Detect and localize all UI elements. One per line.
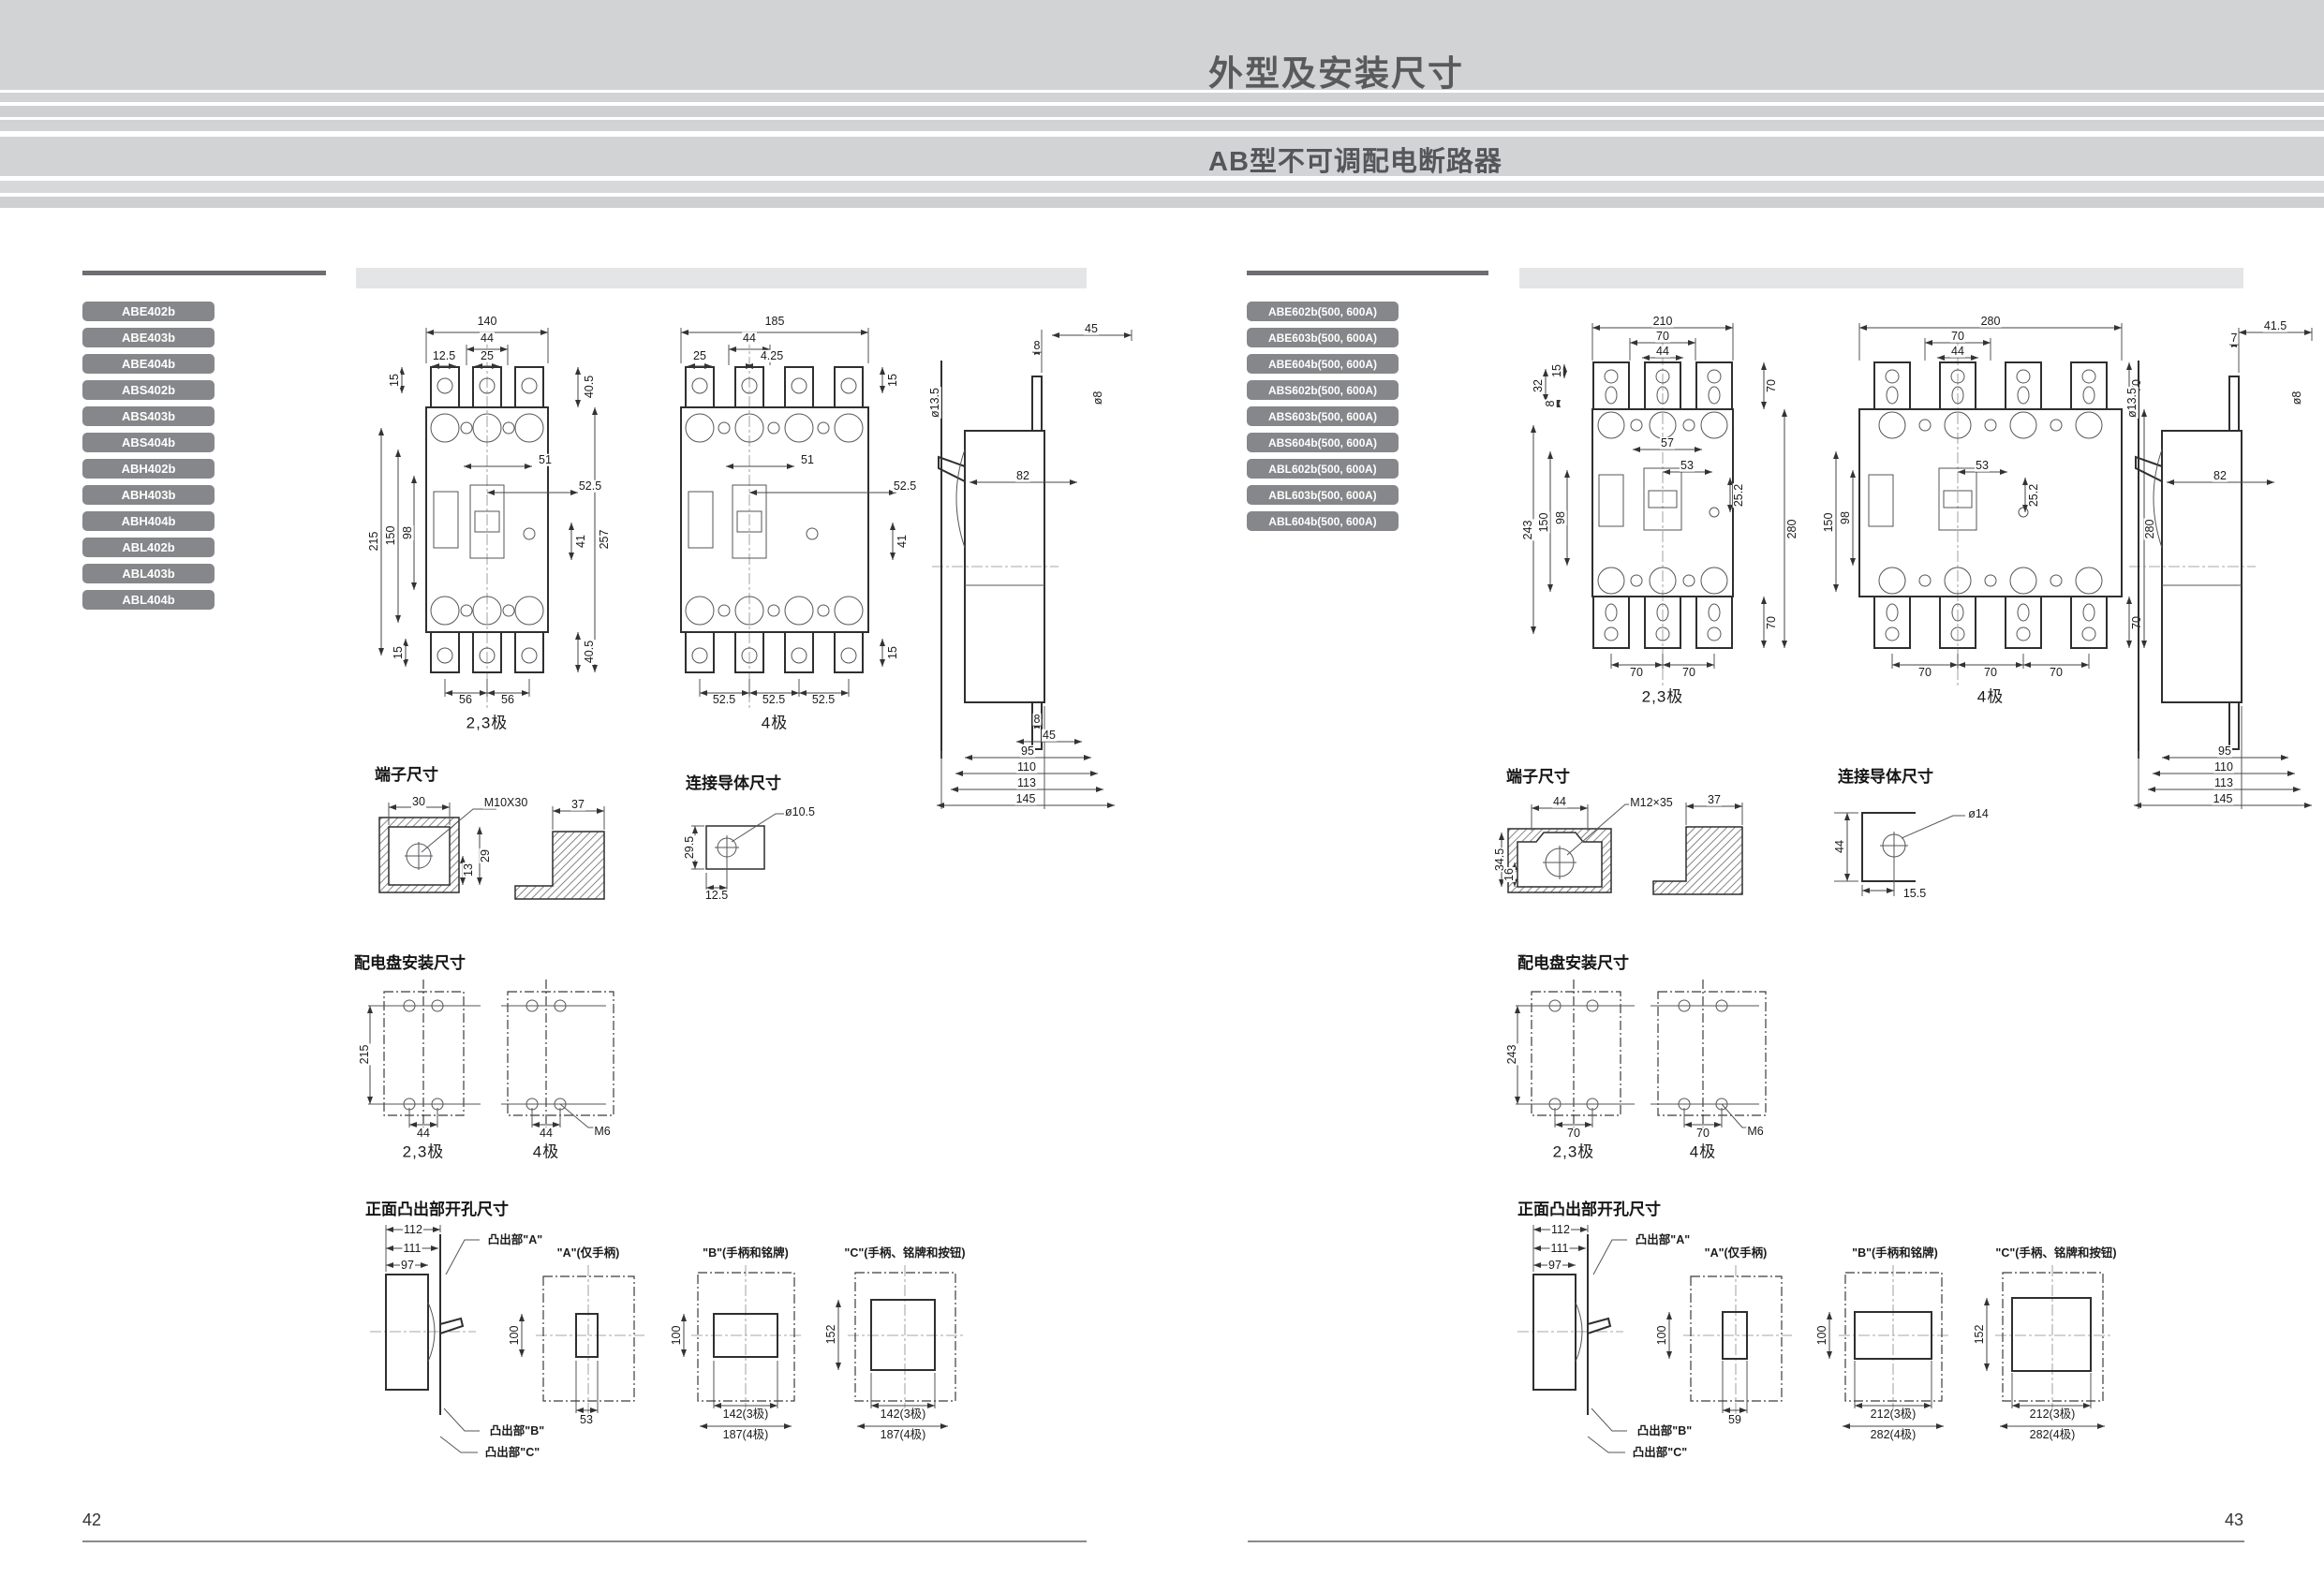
dim-label: 25	[692, 350, 707, 362]
dim-label: 95	[2217, 745, 2232, 758]
panel-mounting-drawing	[1508, 980, 1836, 1167]
dim-label: 97	[1547, 1260, 1562, 1272]
dim-label: 113	[1016, 777, 1037, 789]
model-badge: ABE602b(500, 600A)	[1247, 302, 1399, 321]
dim-label: 凸出部"B"	[489, 1425, 545, 1437]
dim-label: 15	[1551, 363, 1563, 378]
model-badge: ABL604b(500, 600A)	[1247, 511, 1399, 531]
dim-label: 56	[500, 694, 515, 706]
page-number-left: 42	[82, 1511, 101, 1530]
dim-label: 152	[1974, 1324, 1986, 1346]
dim-label: 7	[2230, 332, 2239, 345]
dim-label: 243	[1506, 1044, 1518, 1066]
page-header-band	[0, 0, 2324, 208]
right-cutout-figure: 11211197凸出部"A"凸出部"B"凸出部"C""A"(仅手柄)10059"…	[1513, 1223, 2225, 1466]
dim-label: 82	[1015, 470, 1030, 482]
right-section-band	[1519, 268, 2243, 288]
dim-label: ø13.5	[2126, 387, 2139, 419]
conductor-drawing	[1827, 789, 2023, 921]
dim-label: 29	[480, 848, 492, 863]
dim-label: 100	[509, 1325, 521, 1347]
figure-caption: 4极	[1689, 1144, 1717, 1160]
dim-label: M10X30	[483, 797, 529, 809]
left-terminal-figure: 30M10X30132937	[365, 794, 618, 916]
model-badge: ABH402b	[82, 459, 215, 479]
model-badge: ABS402b	[82, 380, 215, 400]
left-front-view-2-3-pole: 1404412.5251540.55152.521515098412571540…	[361, 309, 614, 735]
dim-label: 8	[1033, 714, 1042, 726]
left-section-band	[356, 268, 1087, 288]
dim-label: 70	[1629, 667, 1644, 679]
right-section-rule	[1247, 271, 1488, 275]
dim-label: 37	[1707, 794, 1722, 806]
dim-label: 15.5	[1902, 888, 1927, 900]
terminal-drawing	[365, 794, 618, 916]
section-title-terminal-left: 端子尺寸	[375, 761, 438, 785]
dim-label: 212(3极)	[2029, 1408, 2077, 1421]
dim-label: 112	[1550, 1224, 1571, 1236]
dim-label: ø10.5	[784, 806, 816, 818]
dim-label: 215	[368, 531, 380, 553]
model-badge: ABS602b(500, 600A)	[1247, 380, 1399, 400]
dim-label: 57	[1660, 437, 1675, 450]
dim-label: M6	[593, 1126, 611, 1138]
figure-caption: 4极	[532, 1144, 560, 1160]
model-badge: ABS403b	[82, 406, 215, 426]
left-conductor-figure: 29.5ø10.512.5	[680, 798, 839, 910]
dim-label: 44	[539, 1127, 554, 1140]
section-title-conductor-left: 连接导体尺寸	[686, 770, 781, 793]
right-terminal-figure: 44M12×3534.51637	[1494, 789, 1822, 921]
dim-label: 150	[1538, 512, 1550, 534]
dim-label: 150	[1823, 512, 1835, 534]
page-subtitle: AB型不可调配电断路器	[1208, 140, 1502, 179]
dim-label: 40.5	[584, 375, 596, 399]
dim-label: 45	[1084, 323, 1099, 335]
model-badge: ABE403b	[82, 328, 215, 347]
dim-label: 37	[570, 799, 585, 811]
dim-label: 59	[1727, 1414, 1742, 1426]
model-badge: ABS603b(500, 600A)	[1247, 406, 1399, 426]
model-badge: ABE603b(500, 600A)	[1247, 328, 1399, 347]
dim-label: 56	[458, 694, 473, 706]
dim-label: 257	[599, 529, 611, 551]
dim-label: 45	[1042, 730, 1057, 742]
dim-label: 12.5	[704, 890, 729, 902]
dim-label: "B"(手柄和铭牌)	[702, 1247, 790, 1260]
page-number-right: 43	[2206, 1511, 2243, 1530]
dim-label: 15	[887, 645, 899, 660]
dim-label: 70	[2049, 667, 2064, 679]
right-conductor-figure: 44ø1415.5	[1827, 789, 2023, 921]
dim-label: 145	[1015, 793, 1037, 805]
dim-label: 152	[825, 1324, 837, 1346]
dim-label: 51	[538, 454, 553, 466]
figure-caption: 2,3极	[402, 1144, 446, 1160]
dim-label: "C"(手柄、铭牌和按钮)	[1994, 1247, 2117, 1260]
dim-label: 110	[1016, 761, 1037, 774]
model-badge: ABL404b	[82, 590, 215, 610]
model-badge: ABL403b	[82, 564, 215, 583]
figure-caption: 2,3极	[1641, 689, 1685, 705]
dim-label: 44	[742, 332, 757, 345]
dim-label: 70	[1695, 1127, 1710, 1140]
breaker-side-drawing	[2124, 309, 2321, 819]
section-title-terminal-right: 端子尺寸	[1506, 763, 1570, 787]
dim-label: 41	[896, 534, 909, 549]
dim-label: "B"(手柄和铭牌)	[1851, 1247, 1939, 1260]
cutout-drawing	[365, 1223, 1049, 1466]
right-footer-rule	[1248, 1540, 2244, 1542]
dim-label: 15	[389, 373, 401, 388]
dim-label: 8	[1545, 400, 1557, 408]
dim-label: 210	[1652, 316, 1674, 328]
right-front-view-4-pole: 2807044150985325.270280707070704极	[1813, 311, 2154, 709]
dim-label: M12×35	[1629, 797, 1674, 809]
dim-label: 40.5	[584, 640, 596, 664]
dim-label: 98	[402, 525, 414, 540]
dim-label: 100	[671, 1325, 683, 1347]
dim-label: 4.25	[760, 350, 784, 362]
dim-label: 53	[1975, 460, 1990, 472]
figure-caption: 4极	[1976, 689, 2005, 705]
breaker-front-drawing	[1813, 311, 2154, 709]
right-front-view-2-3-pole: 21070441532870575325.2243150982807070702…	[1522, 311, 1803, 709]
dim-label: 280	[1786, 519, 1799, 540]
breaker-side-drawing	[927, 309, 1162, 819]
model-badge: ABE402b	[82, 302, 215, 321]
dim-label: "C"(手柄、铭牌和按钮)	[843, 1247, 966, 1260]
panel-mounting-drawing	[361, 980, 688, 1167]
dim-label: 100	[1656, 1325, 1668, 1347]
model-badge: ABE404b	[82, 354, 215, 374]
dim-label: 53	[579, 1414, 594, 1426]
dim-label: 70	[1950, 331, 1965, 343]
dim-label: 100	[1816, 1325, 1828, 1347]
left-footer-rule	[82, 1540, 1087, 1542]
section-title-cutout-left: 正面凸出部开孔尺寸	[365, 1196, 509, 1219]
left-section-rule	[82, 271, 326, 275]
section-title-conductor-right: 连接导体尺寸	[1838, 763, 1933, 787]
dim-label: 32	[1532, 378, 1545, 393]
dim-label: 41.5	[2263, 320, 2287, 332]
dim-label: 44	[1552, 796, 1567, 808]
dim-label: ø14	[1967, 808, 1990, 820]
section-title-panel-right: 配电盘安装尺寸	[1517, 950, 1629, 973]
left-side-view: 458ø13.5ø88284595110113145	[927, 309, 1162, 819]
figure-caption: 2,3极	[466, 715, 510, 731]
dim-label: 13	[463, 862, 475, 877]
right-side-view: 41.57ø13.5ø88295110113145	[2124, 309, 2321, 819]
dim-label: 142(3极)	[722, 1408, 770, 1421]
dim-label: ø8	[2291, 391, 2303, 406]
model-badge: ABH403b	[82, 485, 215, 505]
dim-label: 145	[2213, 793, 2234, 805]
left-front-view-4-pole: 18544254.25155152.54152.552.552.5154极	[629, 309, 920, 735]
dim-label: 41	[575, 534, 587, 549]
dim-label: 98	[1555, 510, 1567, 525]
dim-label: 凸出部"C"	[484, 1447, 540, 1459]
model-badge: ABE604b(500, 600A)	[1247, 354, 1399, 374]
dim-label: 53	[1680, 460, 1695, 472]
dim-label: 30	[411, 796, 426, 808]
left-model-list: ABE402bABE403bABE404bABS402bABS403bABS40…	[82, 302, 215, 610]
terminal-drawing	[1494, 789, 1822, 921]
dim-label: 70	[1766, 615, 1778, 630]
section-title-panel-left: 配电盘安装尺寸	[354, 950, 466, 973]
dim-label: 112	[403, 1224, 423, 1236]
dim-label: 243	[1522, 520, 1534, 541]
model-badge: ABH404b	[82, 511, 215, 531]
dim-label: 113	[2213, 777, 2234, 789]
dim-label: 凸出部"A"	[487, 1234, 543, 1246]
right-model-list: ABE602b(500, 600A)ABE603b(500, 600A)ABE6…	[1247, 302, 1399, 531]
section-title-cutout-right: 正面凸出部开孔尺寸	[1517, 1196, 1661, 1219]
dim-label: 52.5	[712, 694, 736, 706]
dim-label: "A"(仅手柄)	[556, 1247, 621, 1260]
dim-label: 111	[402, 1243, 422, 1255]
dim-label: M6	[1746, 1126, 1764, 1138]
dim-label: 52.5	[811, 694, 836, 706]
dim-label: 70	[1766, 378, 1778, 393]
dim-label: 110	[2213, 761, 2234, 774]
dim-label: 280	[1980, 316, 2002, 328]
model-badge: ABL602b(500, 600A)	[1247, 459, 1399, 479]
dim-label: 25	[480, 350, 495, 362]
dim-label: 44	[1834, 839, 1846, 854]
breaker-front-drawing	[629, 309, 920, 735]
dim-label: 142(3极)	[880, 1408, 927, 1421]
dim-label: 95	[1020, 745, 1035, 758]
dim-label: 70	[1566, 1127, 1581, 1140]
dim-label: 215	[359, 1044, 371, 1066]
left-cutout-figure: 11211197凸出部"A"凸出部"B"凸出部"C""A"(仅手柄)10053"…	[365, 1223, 1049, 1466]
dim-label: 16	[1503, 867, 1516, 882]
dim-label: 150	[385, 525, 397, 547]
dim-label: 52.5	[893, 480, 917, 493]
dim-label: "A"(仅手柄)	[1704, 1247, 1769, 1260]
model-badge: ABL402b	[82, 538, 215, 557]
dim-label: 25.2	[2028, 483, 2040, 508]
dim-label: 111	[1549, 1243, 1569, 1255]
dim-label: 282(4极)	[2029, 1429, 2077, 1441]
model-badge: ABS404b	[82, 433, 215, 452]
figure-caption: 4极	[761, 715, 789, 731]
dim-label: 8	[1033, 340, 1042, 352]
dim-label: 29.5	[684, 835, 696, 860]
dim-label: 15	[392, 645, 405, 660]
dim-label: 187(4极)	[880, 1429, 927, 1441]
dim-label: 44	[1950, 346, 1965, 358]
dim-label: 52.5	[762, 694, 786, 706]
dim-label: 187(4极)	[722, 1429, 770, 1441]
model-badge: ABS604b(500, 600A)	[1247, 433, 1399, 452]
dim-label: 140	[477, 316, 498, 328]
dim-label: 44	[1655, 346, 1670, 358]
dim-label: 25.2	[1733, 483, 1745, 508]
dim-label: 凸出部"A"	[1635, 1234, 1691, 1246]
right-panel-mounting-figure: 2437070M62,3极4极	[1508, 980, 1836, 1167]
figure-caption: 2,3极	[1552, 1144, 1596, 1160]
dim-label: 51	[800, 454, 815, 466]
dim-label: 212(3极)	[1870, 1408, 1917, 1421]
dim-label: 44	[480, 332, 495, 345]
dim-label: 52.5	[578, 480, 602, 493]
model-badge: ABL603b(500, 600A)	[1247, 485, 1399, 505]
dim-label: ø8	[1092, 391, 1104, 406]
dim-label: 70	[1917, 667, 1932, 679]
dim-label: 44	[416, 1127, 431, 1140]
page-title: 外型及安装尺寸	[1208, 45, 1464, 96]
dim-label: 70	[1681, 667, 1696, 679]
dim-label: 82	[2213, 470, 2228, 482]
dim-label: 185	[764, 316, 786, 328]
dim-label: 97	[400, 1260, 415, 1272]
dim-label: 98	[1840, 510, 1852, 525]
dim-label: 凸出部"B"	[1636, 1425, 1693, 1437]
dim-label: ø13.5	[929, 387, 941, 419]
dim-label: 282(4极)	[1870, 1429, 1917, 1441]
dim-label: 70	[1983, 667, 1998, 679]
dim-label: 15	[887, 373, 899, 388]
catalog-spread: 外型及安装尺寸 AB型不可调配电断路器 ABE402bABE403bABE404…	[0, 0, 2324, 1577]
dim-label: 12.5	[432, 350, 456, 362]
dim-label: 凸出部"C"	[1632, 1447, 1688, 1459]
dim-label: 70	[1655, 331, 1670, 343]
left-panel-mounting-figure: 2154444M62,3极4极	[361, 980, 688, 1167]
